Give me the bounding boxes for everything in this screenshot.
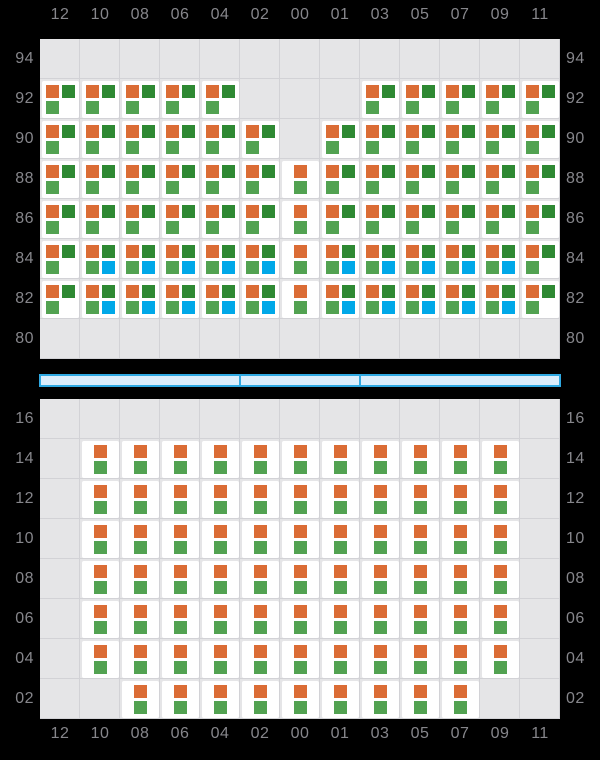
orange-indicator (294, 165, 307, 178)
slot-tile (322, 161, 359, 198)
occupied-slot[interactable] (320, 519, 360, 559)
slot-tile (282, 561, 319, 598)
light-green-indicator (246, 301, 259, 314)
blue-indicator (182, 301, 195, 314)
occupied-slot[interactable] (80, 519, 120, 559)
occupied-slot[interactable] (120, 479, 160, 519)
occupied-slot[interactable] (160, 279, 200, 319)
slot-tile (402, 201, 439, 238)
orange-indicator (174, 525, 187, 538)
occupied-slot[interactable] (520, 199, 560, 239)
occupied-slot[interactable] (280, 439, 320, 479)
occupied-slot[interactable] (400, 519, 440, 559)
occupied-slot[interactable] (360, 439, 400, 479)
occupied-slot[interactable] (280, 559, 320, 599)
occupied-slot[interactable] (480, 439, 520, 479)
light-green-indicator (254, 501, 267, 514)
occupied-slot[interactable] (360, 279, 400, 319)
light-green-indicator (326, 221, 339, 234)
light-green-indicator (454, 461, 467, 474)
occupied-slot[interactable] (480, 559, 520, 599)
occupied-slot[interactable] (240, 599, 280, 639)
occupied-slot[interactable] (240, 559, 280, 599)
occupied-slot[interactable] (200, 479, 240, 519)
orange-indicator (366, 245, 379, 258)
occupied-slot[interactable] (520, 119, 560, 159)
dark-green-indicator (422, 245, 435, 258)
blue-indicator (222, 261, 235, 274)
occupied-slot[interactable] (80, 639, 120, 679)
orange-indicator (126, 205, 139, 218)
hatch-cover-segment[interactable] (41, 376, 239, 385)
dark-green-indicator (462, 125, 475, 138)
occupied-slot[interactable] (160, 559, 200, 599)
occupied-slot[interactable] (160, 199, 200, 239)
occupied-slot[interactable] (360, 559, 400, 599)
occupied-slot[interactable] (160, 159, 200, 199)
occupied-slot[interactable] (80, 79, 120, 119)
empty-slot (160, 399, 200, 439)
occupied-slot[interactable] (440, 639, 480, 679)
occupied-slot[interactable] (120, 159, 160, 199)
light-green-indicator (366, 141, 379, 154)
occupied-slot[interactable] (280, 479, 320, 519)
slot-tile (242, 561, 279, 598)
occupied-slot[interactable] (440, 599, 480, 639)
occupied-slot[interactable] (200, 519, 240, 559)
light-green-indicator (406, 261, 419, 274)
slot-tile (362, 481, 399, 518)
light-green-indicator (414, 581, 427, 594)
occupied-slot[interactable] (440, 439, 480, 479)
occupied-slot[interactable] (400, 639, 440, 679)
occupied-slot[interactable] (120, 599, 160, 639)
light-green-indicator (134, 461, 147, 474)
occupied-slot[interactable] (200, 159, 240, 199)
deck-tier-axis-right: 9492908886848280 (566, 39, 600, 359)
occupied-slot[interactable] (360, 199, 400, 239)
light-green-indicator (206, 301, 219, 314)
occupied-slot[interactable] (440, 559, 480, 599)
empty-slot (520, 439, 560, 479)
occupied-slot[interactable] (520, 239, 560, 279)
dark-green-indicator (502, 85, 515, 98)
occupied-slot[interactable] (40, 159, 80, 199)
orange-indicator (294, 245, 307, 258)
occupied-slot[interactable] (280, 519, 320, 559)
light-green-indicator (134, 621, 147, 634)
dark-green-indicator (62, 85, 75, 98)
dark-green-indicator (422, 85, 435, 98)
occupied-slot[interactable] (120, 239, 160, 279)
occupied-slot[interactable] (480, 519, 520, 559)
occupied-slot[interactable] (360, 519, 400, 559)
empty-slot (160, 39, 200, 79)
light-green-indicator (526, 181, 539, 194)
orange-indicator (446, 205, 459, 218)
occupied-slot[interactable] (120, 279, 160, 319)
occupied-slot[interactable] (440, 119, 480, 159)
slot-tile (322, 641, 359, 678)
occupied-slot[interactable] (80, 199, 120, 239)
light-green-indicator (174, 701, 187, 714)
blue-indicator (422, 261, 435, 274)
slot-tile (122, 641, 159, 678)
light-green-indicator (374, 581, 387, 594)
column-label: 04 (200, 719, 240, 749)
dark-green-indicator (382, 245, 395, 258)
slot-tile (42, 241, 79, 278)
blue-indicator (382, 261, 395, 274)
blue-indicator (382, 301, 395, 314)
orange-indicator (246, 205, 259, 218)
occupied-slot[interactable] (200, 199, 240, 239)
occupied-slot[interactable] (480, 279, 520, 319)
occupied-slot[interactable] (40, 199, 80, 239)
tier-label: 88 (0, 159, 34, 199)
occupied-slot[interactable] (480, 119, 520, 159)
occupied-slot[interactable] (480, 479, 520, 519)
occupied-slot[interactable] (440, 159, 480, 199)
occupied-slot[interactable] (320, 639, 360, 679)
occupied-slot[interactable] (160, 439, 200, 479)
orange-indicator (294, 485, 307, 498)
occupied-slot[interactable] (320, 199, 360, 239)
occupied-slot[interactable] (80, 599, 120, 639)
light-green-indicator (446, 101, 459, 114)
orange-indicator (406, 125, 419, 138)
occupied-slot[interactable] (80, 439, 120, 479)
hatch-cover-segment[interactable] (359, 376, 559, 385)
orange-indicator (294, 525, 307, 538)
occupied-slot[interactable] (40, 239, 80, 279)
occupied-slot[interactable] (480, 639, 520, 679)
occupied-slot[interactable] (400, 79, 440, 119)
light-green-indicator (334, 621, 347, 634)
empty-slot (480, 39, 520, 79)
light-green-indicator (254, 621, 267, 634)
occupied-slot[interactable] (320, 599, 360, 639)
occupied-slot[interactable] (240, 199, 280, 239)
occupied-slot[interactable] (280, 639, 320, 679)
slot-tile (162, 521, 199, 558)
occupied-slot[interactable] (200, 279, 240, 319)
orange-indicator (126, 245, 139, 258)
occupied-slot[interactable] (400, 679, 440, 719)
slot-tile (322, 561, 359, 598)
occupied-slot[interactable] (80, 159, 120, 199)
orange-indicator (374, 445, 387, 458)
occupied-slot[interactable] (440, 679, 480, 719)
tier-label: 02 (0, 679, 34, 719)
occupied-slot[interactable] (440, 239, 480, 279)
orange-indicator (526, 245, 539, 258)
hatch-cover-segment[interactable] (239, 376, 360, 385)
dark-green-indicator (62, 285, 75, 298)
occupied-slot[interactable] (240, 679, 280, 719)
light-green-indicator (334, 661, 347, 674)
slot-tile (522, 281, 559, 318)
occupied-slot[interactable] (120, 439, 160, 479)
occupied-slot[interactable] (200, 639, 240, 679)
dark-green-indicator (342, 205, 355, 218)
tier-label: 06 (566, 599, 600, 639)
occupied-slot[interactable] (440, 199, 480, 239)
occupied-slot[interactable] (480, 79, 520, 119)
orange-indicator (86, 205, 99, 218)
occupied-slot[interactable] (200, 679, 240, 719)
empty-slot (200, 39, 240, 79)
light-green-indicator (494, 581, 507, 594)
occupied-slot[interactable] (280, 159, 320, 199)
orange-indicator (206, 125, 219, 138)
occupied-slot[interactable] (440, 79, 480, 119)
occupied-slot[interactable] (400, 599, 440, 639)
light-green-indicator (214, 621, 227, 634)
occupied-slot[interactable] (160, 639, 200, 679)
slot-tile (162, 281, 199, 318)
occupied-slot[interactable] (320, 479, 360, 519)
occupied-slot[interactable] (440, 479, 480, 519)
occupied-slot[interactable] (80, 239, 120, 279)
occupied-slot[interactable] (360, 679, 400, 719)
orange-indicator (326, 245, 339, 258)
column-label: 08 (120, 0, 160, 30)
occupied-slot[interactable] (480, 239, 520, 279)
occupied-slot[interactable] (520, 279, 560, 319)
occupied-slot[interactable] (400, 159, 440, 199)
light-green-indicator (366, 221, 379, 234)
light-green-indicator (366, 101, 379, 114)
hold-tier-axis-left: 1614121008060402 (0, 399, 34, 719)
light-green-indicator (166, 101, 179, 114)
occupied-slot[interactable] (120, 559, 160, 599)
orange-indicator (86, 285, 99, 298)
slot-tile (482, 201, 519, 238)
dark-green-indicator (62, 205, 75, 218)
occupied-slot[interactable] (200, 79, 240, 119)
occupied-slot[interactable] (160, 599, 200, 639)
slot-tile (402, 481, 439, 518)
slot-tile (122, 441, 159, 478)
light-green-indicator (414, 541, 427, 554)
occupied-slot[interactable] (240, 119, 280, 159)
occupied-slot[interactable] (280, 239, 320, 279)
empty-slot (360, 319, 400, 359)
empty-slot (400, 399, 440, 439)
occupied-slot[interactable] (360, 159, 400, 199)
occupied-slot[interactable] (400, 279, 440, 319)
light-green-indicator (374, 621, 387, 634)
empty-slot (40, 319, 80, 359)
occupied-slot[interactable] (120, 679, 160, 719)
slot-tile (42, 121, 79, 158)
occupied-slot[interactable] (280, 679, 320, 719)
slot-tile (202, 521, 239, 558)
occupied-slot[interactable] (160, 239, 200, 279)
light-green-indicator (294, 621, 307, 634)
occupied-slot[interactable] (240, 279, 280, 319)
light-green-indicator (126, 101, 139, 114)
tier-label: 92 (0, 79, 34, 119)
slot-tile (362, 601, 399, 638)
slot-tile (522, 161, 559, 198)
light-green-indicator (406, 301, 419, 314)
orange-indicator (94, 645, 107, 658)
occupied-slot[interactable] (160, 679, 200, 719)
occupied-slot[interactable] (40, 79, 80, 119)
occupied-slot[interactable] (40, 119, 80, 159)
dark-green-indicator (102, 85, 115, 98)
occupied-slot[interactable] (240, 639, 280, 679)
tier-label: 04 (566, 639, 600, 679)
occupied-slot[interactable] (240, 159, 280, 199)
light-green-indicator (414, 501, 427, 514)
occupied-slot[interactable] (160, 479, 200, 519)
occupied-slot[interactable] (240, 239, 280, 279)
empty-slot (360, 39, 400, 79)
blue-indicator (502, 301, 515, 314)
occupied-slot[interactable] (480, 599, 520, 639)
occupied-slot[interactable] (200, 559, 240, 599)
occupied-slot[interactable] (200, 439, 240, 479)
occupied-slot[interactable] (160, 119, 200, 159)
occupied-slot[interactable] (200, 239, 240, 279)
occupied-slot[interactable] (120, 639, 160, 679)
orange-indicator (406, 245, 419, 258)
light-green-indicator (126, 261, 139, 274)
occupied-slot[interactable] (400, 119, 440, 159)
occupied-slot[interactable] (40, 279, 80, 319)
occupied-slot[interactable] (320, 559, 360, 599)
slot-tile (282, 681, 319, 718)
occupied-slot[interactable] (320, 439, 360, 479)
slot-tile (482, 561, 519, 598)
slot-tile (122, 121, 159, 158)
tier-label: 86 (0, 199, 34, 239)
occupied-slot[interactable] (520, 79, 560, 119)
light-green-indicator (406, 221, 419, 234)
occupied-slot[interactable] (400, 199, 440, 239)
occupied-slot[interactable] (360, 639, 400, 679)
light-green-indicator (446, 301, 459, 314)
dark-green-indicator (542, 85, 555, 98)
orange-indicator (46, 205, 59, 218)
tier-label: 08 (566, 559, 600, 599)
dark-green-indicator (502, 245, 515, 258)
occupied-slot[interactable] (400, 559, 440, 599)
occupied-slot[interactable] (120, 119, 160, 159)
occupied-slot[interactable] (280, 199, 320, 239)
occupied-slot[interactable] (80, 479, 120, 519)
occupied-slot[interactable] (320, 159, 360, 199)
occupied-slot[interactable] (360, 119, 400, 159)
light-green-indicator (486, 261, 499, 274)
slot-tile (322, 121, 359, 158)
occupied-slot[interactable] (160, 519, 200, 559)
orange-indicator (166, 205, 179, 218)
occupied-slot[interactable] (280, 279, 320, 319)
occupied-slot[interactable] (440, 279, 480, 319)
orange-indicator (454, 645, 467, 658)
light-green-indicator (294, 661, 307, 674)
occupied-slot[interactable] (160, 79, 200, 119)
occupied-slot[interactable] (280, 599, 320, 639)
slot-tile (522, 241, 559, 278)
occupied-slot[interactable] (240, 439, 280, 479)
column-label: 05 (400, 719, 440, 749)
orange-indicator (254, 645, 267, 658)
light-green-indicator (214, 501, 227, 514)
slot-tile (202, 241, 239, 278)
orange-indicator (134, 605, 147, 618)
occupied-slot[interactable] (400, 239, 440, 279)
occupied-slot[interactable] (440, 519, 480, 559)
occupied-slot[interactable] (120, 519, 160, 559)
orange-indicator (214, 645, 227, 658)
slot-tile (442, 681, 479, 718)
column-label: 10 (80, 0, 120, 30)
tier-label: 10 (566, 519, 600, 559)
occupied-slot[interactable] (320, 239, 360, 279)
light-green-indicator (414, 701, 427, 714)
occupied-slot[interactable] (240, 479, 280, 519)
orange-indicator (206, 85, 219, 98)
occupied-slot[interactable] (200, 119, 240, 159)
slot-tile (402, 441, 439, 478)
occupied-slot[interactable] (120, 199, 160, 239)
occupied-slot[interactable] (360, 239, 400, 279)
occupied-slot[interactable] (320, 279, 360, 319)
occupied-slot[interactable] (480, 199, 520, 239)
slot-tile (442, 561, 479, 598)
light-green-indicator (254, 661, 267, 674)
light-green-indicator (126, 221, 139, 234)
orange-indicator (86, 165, 99, 178)
empty-slot (480, 679, 520, 719)
occupied-slot[interactable] (400, 439, 440, 479)
occupied-slot[interactable] (80, 279, 120, 319)
occupied-slot[interactable] (480, 159, 520, 199)
light-green-indicator (174, 541, 187, 554)
column-axis-bottom: 12100806040200010305070911 (40, 719, 560, 749)
slot-tile (162, 161, 199, 198)
occupied-slot[interactable] (360, 79, 400, 119)
orange-indicator (174, 445, 187, 458)
occupied-slot[interactable] (520, 159, 560, 199)
occupied-slot[interactable] (360, 599, 400, 639)
occupied-slot[interactable] (320, 679, 360, 719)
occupied-slot[interactable] (360, 479, 400, 519)
slot-tile (202, 81, 239, 118)
empty-slot (40, 679, 80, 719)
occupied-slot[interactable] (400, 479, 440, 519)
occupied-slot[interactable] (320, 119, 360, 159)
slot-tile (282, 201, 319, 238)
light-green-indicator (334, 501, 347, 514)
empty-slot (80, 319, 120, 359)
orange-indicator (294, 685, 307, 698)
light-green-indicator (174, 661, 187, 674)
occupied-slot[interactable] (80, 119, 120, 159)
column-axis-top: 12100806040200010305070911 (40, 0, 560, 30)
occupied-slot[interactable] (240, 519, 280, 559)
slot-tile (82, 121, 119, 158)
occupied-slot[interactable] (120, 79, 160, 119)
occupied-slot[interactable] (80, 559, 120, 599)
occupied-slot[interactable] (200, 599, 240, 639)
orange-indicator (494, 605, 507, 618)
